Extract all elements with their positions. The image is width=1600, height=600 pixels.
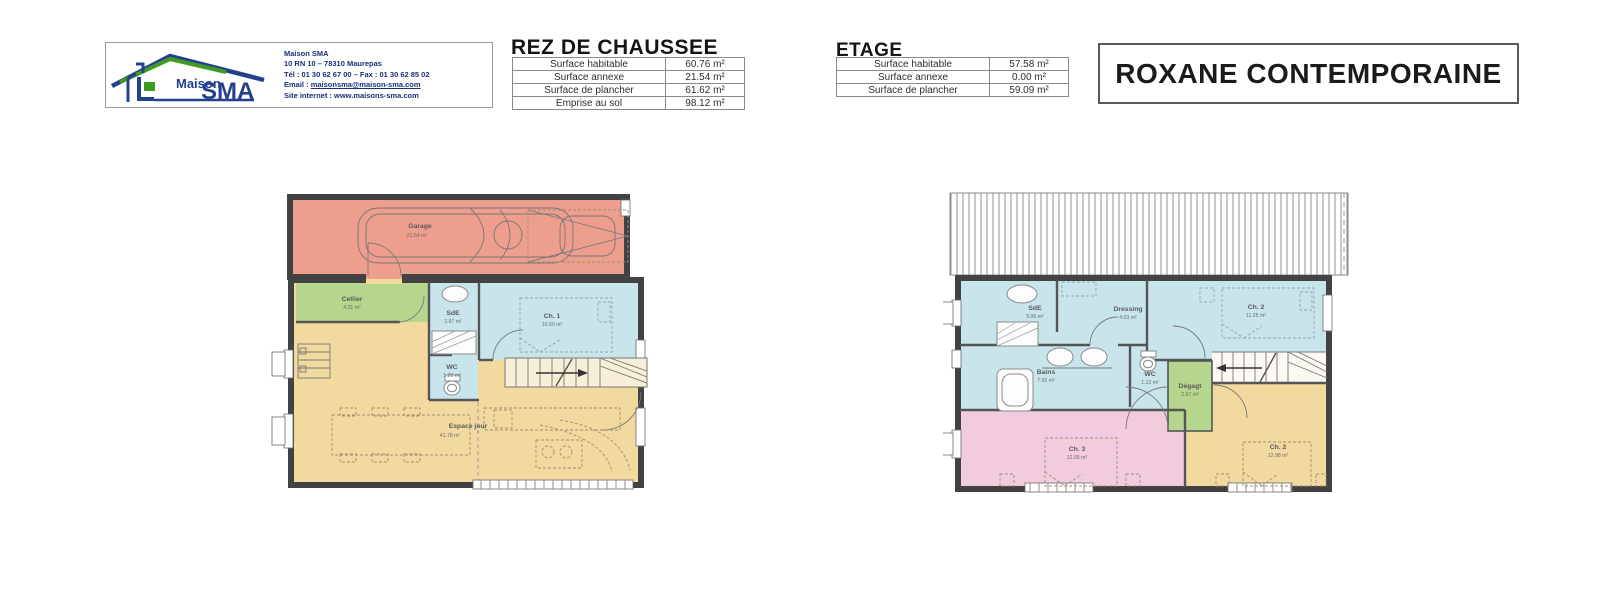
room-area: 2.97 m² bbox=[444, 319, 462, 325]
sink-icon bbox=[442, 286, 468, 302]
row-value: 59.09 m² bbox=[990, 84, 1069, 97]
site-url: www.maisons-sma.com bbox=[334, 91, 419, 100]
room-label: Espace jour bbox=[449, 423, 488, 430]
roof-hatch bbox=[950, 193, 1348, 275]
room-label: SdE bbox=[446, 310, 460, 317]
site-label: Site internet : bbox=[284, 91, 334, 100]
room-ch1 bbox=[479, 282, 640, 360]
model-title-box: ROXANE CONTEMPORAINE bbox=[1098, 43, 1519, 104]
room-area: 10.50 m² bbox=[542, 322, 563, 328]
room-label: Dégagt bbox=[1178, 383, 1202, 390]
logo-box: Maison SMA Maison SMA 10 RN 10 – 78310 M… bbox=[105, 42, 493, 108]
scanned-plan-sheet: Maison SMA Maison SMA 10 RN 10 – 78310 M… bbox=[0, 0, 1600, 600]
room-area: 7.92 m² bbox=[1037, 378, 1055, 384]
window-sill bbox=[943, 302, 953, 324]
bay-window-ticks bbox=[473, 480, 633, 489]
room-area: 12.98 m² bbox=[1268, 453, 1289, 459]
room-area: 5.06 m² bbox=[1026, 314, 1044, 320]
room-area: 1.20 m² bbox=[443, 373, 461, 379]
company-phone-fax: Tél : 01 30 62 67 00 – Fax : 01 30 62 85… bbox=[284, 70, 430, 81]
shower-icon bbox=[432, 331, 476, 354]
table-row: Surface habitable57.58 m² bbox=[837, 58, 1069, 71]
company-contact-block: Maison SMA 10 RN 10 – 78310 Maurepas Tél… bbox=[284, 49, 430, 102]
room-label: Ch. 2 bbox=[1248, 304, 1265, 311]
room-area: 1.12 m² bbox=[1141, 380, 1159, 386]
shower-icon bbox=[997, 322, 1038, 346]
window bbox=[1323, 295, 1332, 331]
window-sill bbox=[943, 433, 953, 455]
entry-opening-top bbox=[366, 272, 402, 279]
row-label: Surface annexe bbox=[837, 71, 990, 84]
room-cellier bbox=[296, 282, 429, 322]
company-name: Maison SMA bbox=[284, 49, 430, 60]
table-row: Surface de plancher61.62 m² bbox=[513, 84, 745, 97]
row-value: 61.62 m² bbox=[666, 84, 745, 97]
room-area: 21.54 m² bbox=[407, 233, 428, 239]
room-label: Ch. 2 bbox=[1270, 444, 1287, 451]
table-row: Surface annexe0.00 m² bbox=[837, 71, 1069, 84]
row-label: Surface de plancher bbox=[513, 84, 666, 97]
room-label: WC bbox=[1144, 371, 1155, 378]
window bbox=[952, 350, 961, 368]
etage-floorplan: SdE 5.06 m² Dressing 4.03 m² Ch. 2 11.25… bbox=[943, 186, 1355, 498]
garage-window bbox=[621, 200, 630, 216]
room-area: 4.03 m² bbox=[1119, 315, 1137, 321]
room-area: 11.25 m² bbox=[1246, 313, 1266, 319]
row-label: Surface habitable bbox=[513, 58, 666, 71]
window-sill bbox=[272, 417, 285, 445]
row-label: Surface annexe bbox=[513, 71, 666, 84]
room-label: SdE bbox=[1028, 305, 1042, 312]
room-label: Ch. 1 bbox=[544, 313, 561, 320]
rdc-floorplan: Garage 21.54 m² Cellier 4.31 m² SdE 2.97… bbox=[266, 188, 662, 498]
sink-icon bbox=[1047, 348, 1073, 366]
company-site-line: Site internet : www.maisons-sma.com bbox=[284, 91, 430, 102]
row-label: Surface de plancher bbox=[837, 84, 990, 97]
row-value: 0.00 m² bbox=[990, 71, 1069, 84]
row-value: 98.12 m² bbox=[666, 97, 745, 110]
row-value: 57.58 m² bbox=[990, 58, 1069, 71]
window bbox=[636, 408, 645, 446]
window-sill bbox=[272, 352, 285, 376]
room-label: Garage bbox=[408, 223, 432, 230]
table-row: Emprise au sol98.12 m² bbox=[513, 97, 745, 110]
table-row: Surface annexe21.54 m² bbox=[513, 71, 745, 84]
brand-main: SMA bbox=[201, 78, 254, 105]
bathtub-icon bbox=[997, 369, 1033, 411]
rdc-surface-table: Surface habitable60.76 m² Surface annexe… bbox=[512, 57, 745, 110]
toilet-icon bbox=[1140, 351, 1156, 371]
row-label: Emprise au sol bbox=[513, 97, 666, 110]
model-title: ROXANE CONTEMPORAINE bbox=[1115, 58, 1501, 90]
company-email-line: Email : maisonsma@maison-sma.com bbox=[284, 80, 430, 91]
room-label: Dressing bbox=[1113, 306, 1142, 313]
row-label: Surface habitable bbox=[837, 58, 990, 71]
window-ticks bbox=[1025, 483, 1093, 492]
sink-icon bbox=[1081, 348, 1107, 366]
etage-surface-table: Surface habitable57.58 m² Surface annexe… bbox=[836, 57, 1069, 97]
table-row: Surface habitable60.76 m² bbox=[513, 58, 745, 71]
room-area: 4.31 m² bbox=[343, 305, 361, 311]
room-area: 12.65 m² bbox=[1067, 455, 1088, 461]
room-label: WC bbox=[446, 364, 457, 371]
maison-sma-logo-icon: Maison SMA bbox=[106, 44, 284, 106]
room-label: Cellier bbox=[342, 296, 363, 303]
email-label: Email : bbox=[284, 80, 311, 89]
room-label: Ch. 3 bbox=[1069, 446, 1086, 453]
room-area: 41.78 m² bbox=[440, 433, 461, 439]
email-link: maisonsma@maison-sma.com bbox=[311, 80, 421, 89]
room-label: Bains bbox=[1037, 369, 1056, 376]
stairs-icon bbox=[505, 358, 647, 387]
sink-icon bbox=[1007, 285, 1037, 303]
table-row: Surface de plancher59.09 m² bbox=[837, 84, 1069, 97]
row-value: 60.76 m² bbox=[666, 58, 745, 71]
company-address: 10 RN 10 – 78310 Maurepas bbox=[284, 59, 430, 70]
room-area: 2.57 m² bbox=[1181, 392, 1199, 398]
row-value: 21.54 m² bbox=[666, 71, 745, 84]
